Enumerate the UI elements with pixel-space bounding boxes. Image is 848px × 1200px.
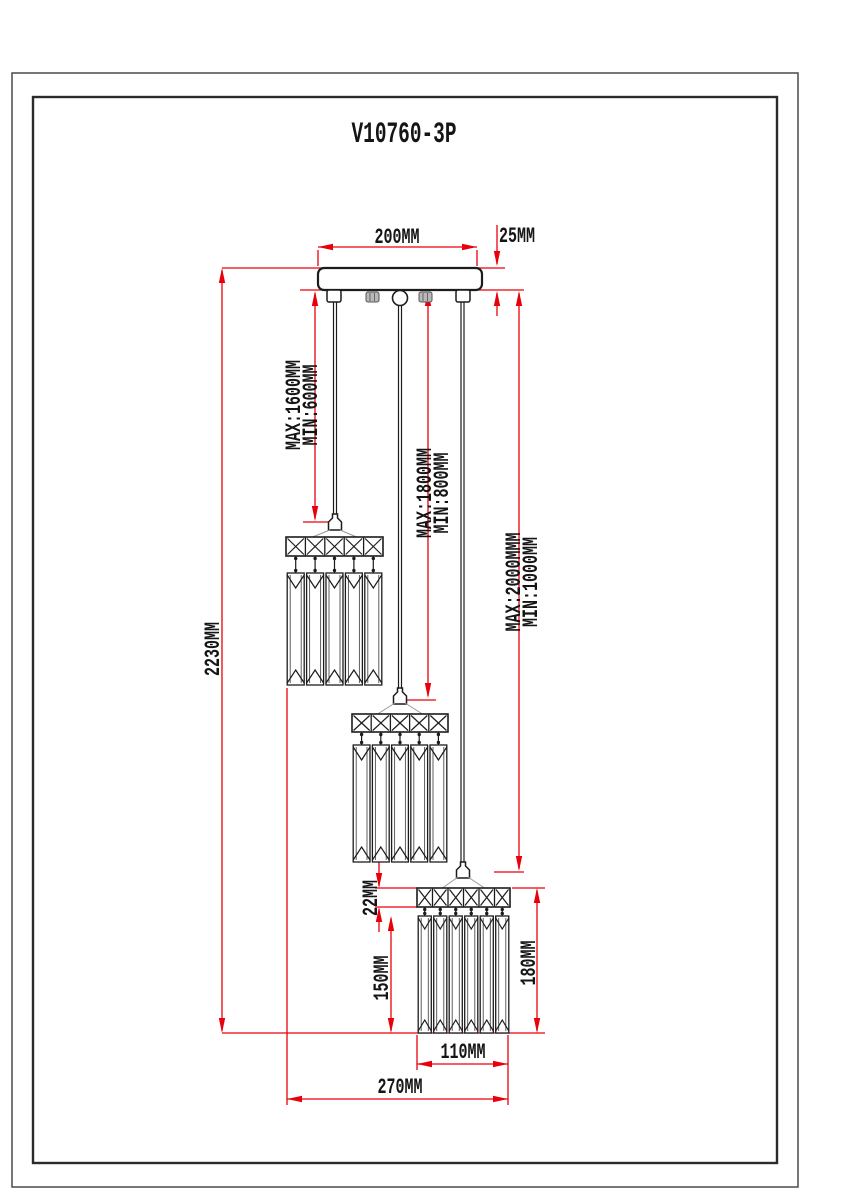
inner-frame <box>33 97 777 1163</box>
span-label: 270MM <box>378 1075 423 1100</box>
prism-height-label: 150MM <box>370 956 395 1001</box>
drawing-sheet: V10760-3P 200MM 25MM 2230MM MAX:1600MM M… <box>0 0 848 1200</box>
pendant2-min-label: MIN:800MM <box>430 453 455 534</box>
technical-drawing: V10760-3P 200MM 25MM 2230MM MAX:1600MM M… <box>0 0 848 1200</box>
pendant3-min-label: MIN:1000MM <box>519 537 544 627</box>
canopy-height-label: 25MM <box>499 224 535 249</box>
shade-height-label: 180MM <box>517 941 542 986</box>
pendant1-min-label: MIN:600MM <box>299 365 324 446</box>
band-height-label: 22MM <box>359 880 384 916</box>
canopy-width-label: 200MM <box>375 225 420 250</box>
shade-width-label: 110MM <box>441 1040 486 1065</box>
drawing-title: V10760-3P <box>352 118 457 152</box>
overall-drop-label: 2230MM <box>201 622 226 676</box>
